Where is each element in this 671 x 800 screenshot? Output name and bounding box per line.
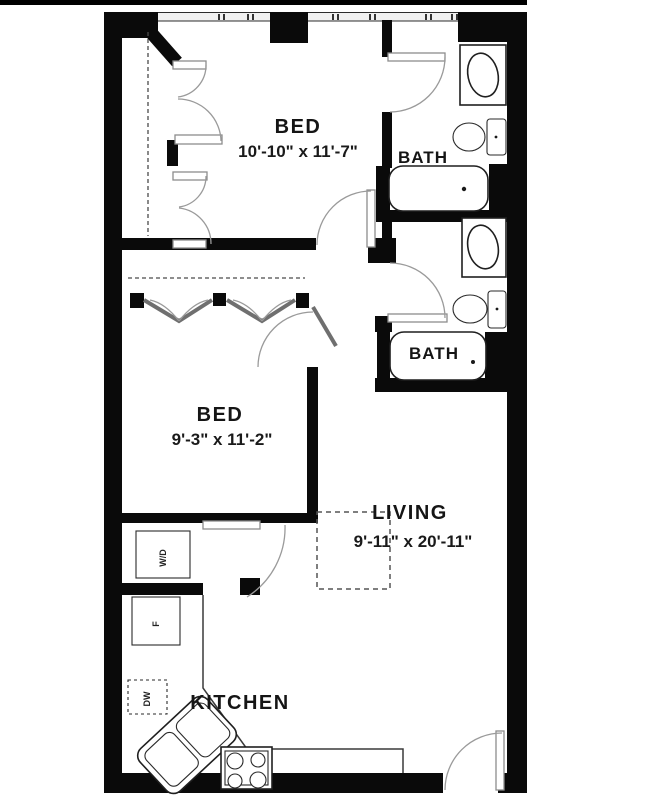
bed1-label: BED: [275, 116, 322, 138]
wall-bed1-bottom: [122, 238, 316, 250]
laundry-door-leaf: [203, 521, 260, 529]
wall-tub1-right-block: [489, 164, 507, 210]
fridge-box: [132, 597, 180, 645]
wall-laundry-block: [240, 578, 260, 595]
bed2-label: BED: [197, 404, 244, 426]
closet-door-leaf: [173, 172, 207, 180]
plan-background: [0, 0, 671, 800]
tub-drain-2: [471, 360, 475, 364]
closet-hinge-block: [296, 293, 309, 308]
washer-dryer-label: W/D: [158, 549, 168, 567]
bath2-door-leaf: [388, 314, 447, 322]
wall-bath2-left-tub: [377, 330, 390, 380]
floor-plan-svg: W/D F DW BED 10'-10" x 11'-7" BATH BATH …: [0, 0, 671, 800]
wall-bath1-left-a: [382, 20, 392, 57]
tub-drain-1: [462, 187, 466, 191]
kitchen-label: KITCHEN: [190, 692, 289, 714]
closet-hinge-block: [130, 293, 144, 308]
wall-right: [507, 12, 527, 773]
bath-lower-label: BATH: [409, 344, 459, 363]
wall-top-center-pier: [270, 12, 308, 43]
wall-left: [104, 12, 122, 793]
closet-hinge-block: [213, 293, 226, 306]
closet-door-leaf: [173, 61, 206, 69]
stove-icon: [221, 747, 272, 789]
bed1-door-leaf: [367, 190, 375, 247]
wall-bath1-left-tub: [376, 166, 390, 212]
bed2-dimensions: 9'-3" x 11'-2": [172, 430, 273, 449]
wall-corner-top-right: [458, 12, 527, 42]
wall-bath2-left-a: [382, 222, 392, 240]
bathtub-1-icon: [389, 166, 488, 211]
bed1-dimensions: 10'-10" x 11'-7": [238, 142, 358, 161]
closet-door-leaf: [173, 240, 206, 248]
dishwasher-label: DW: [142, 691, 152, 706]
window-band: [122, 13, 507, 22]
wall-bed2-right: [307, 367, 318, 523]
living-label: LIVING: [372, 502, 448, 524]
floor-plan-page: W/D F DW BED 10'-10" x 11'-7" BATH BATH …: [0, 0, 671, 800]
image-top-strip: [0, 0, 527, 5]
living-dimensions: 9'-11" x 20'-11": [354, 532, 473, 551]
wall-laundry-bottom: [122, 583, 203, 595]
wall-bath1-left-b: [382, 112, 392, 168]
entry-door-leaf: [496, 731, 504, 790]
closet-door-leaf: [175, 135, 222, 144]
bath-upper-label: BATH: [398, 148, 448, 167]
wall-tub2-right-block: [485, 332, 507, 378]
fridge-label: F: [151, 621, 161, 627]
bath1-door-leaf: [388, 53, 445, 61]
